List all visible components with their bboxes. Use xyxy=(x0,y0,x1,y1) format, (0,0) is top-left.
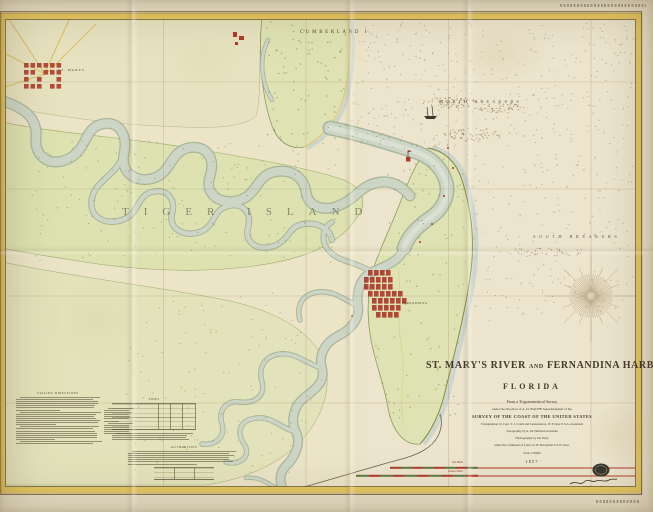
title-triangulation-line: Triangulation by Capt. T. J. Cram and Li… xyxy=(426,422,638,426)
sailing-directions-block: SAILING DIRECTIONS xyxy=(16,391,100,445)
title-survey-line: From a Trigonometrical Survey xyxy=(426,399,638,404)
title-hydrography-line: Hydrography by the Party xyxy=(426,436,638,440)
sea-miles-label: Sea Miles xyxy=(452,461,463,464)
tide-table xyxy=(112,403,196,430)
title-coast-line: SURVEY OF THE COAST OF THE UNITED STATES xyxy=(426,414,638,419)
tide-table-title: TIDES xyxy=(112,397,196,401)
title-topography-line: Topography by A. M. Harrison Assistant xyxy=(426,429,638,433)
label-tiger-island: TIGER ISLAND xyxy=(122,206,377,218)
title-direction-line: under the direction of A. D. BACHE Super… xyxy=(426,407,638,411)
tide-table-block: TIDES xyxy=(112,397,196,441)
authorities-block: AUTHORITIES xyxy=(128,445,240,480)
imprint-bottom-right xyxy=(596,500,640,503)
title-state: FLORIDA xyxy=(426,382,638,391)
label-fernandina-town: FERNANDINA xyxy=(402,301,428,305)
title-and: AND xyxy=(529,364,544,370)
statute-miles-label: Statute Miles xyxy=(448,470,463,473)
imprint-top-right xyxy=(560,4,646,7)
sailing-directions-title: SAILING DIRECTIONS xyxy=(16,391,100,395)
title-part2: FERNANDINA HARBOR xyxy=(547,360,653,371)
title-block: ST. MARY'S RIVER AND FERNANDINA HARBOR F… xyxy=(426,360,638,464)
title-command-line: under the command of Lieut. O. H. Berrym… xyxy=(426,443,638,447)
map-sheet: 4999766695653366444743473989346446565457… xyxy=(0,0,653,512)
title-part1: ST. MARY'S RIVER xyxy=(426,360,526,371)
label-st-marys-town: ST. MARYS xyxy=(58,68,85,72)
title-scale-line: Scale 1/30000 xyxy=(426,451,638,455)
authorities-title: AUTHORITIES xyxy=(128,445,240,449)
surveyor-seal xyxy=(593,464,610,477)
label-south-breakers: SOUTH BREAKERS xyxy=(533,234,620,239)
authorities-sub-table xyxy=(154,467,214,480)
label-north-breakers: NORTH BREAKERS xyxy=(440,99,522,104)
map-title: ST. MARY'S RIVER AND FERNANDINA HARBOR xyxy=(426,360,638,371)
label-cumberland-island: CUMBERLAND I. xyxy=(300,30,373,35)
